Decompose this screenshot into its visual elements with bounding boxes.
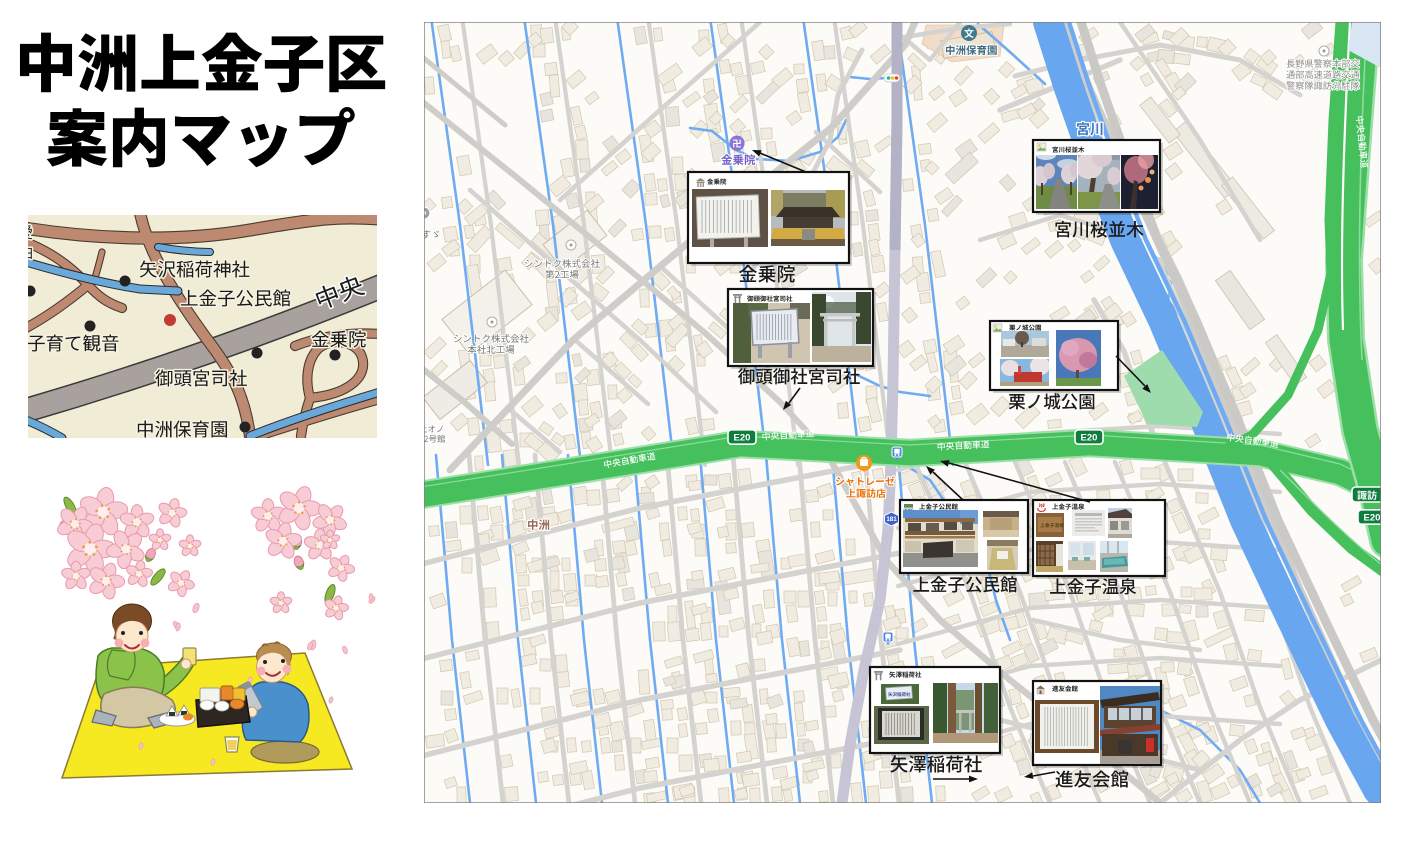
svg-text:E20: E20: [734, 433, 751, 444]
svg-text:E20: E20: [1081, 433, 1098, 444]
svg-text:E20: E20: [1364, 513, 1381, 524]
svg-text:181: 181: [886, 516, 897, 523]
